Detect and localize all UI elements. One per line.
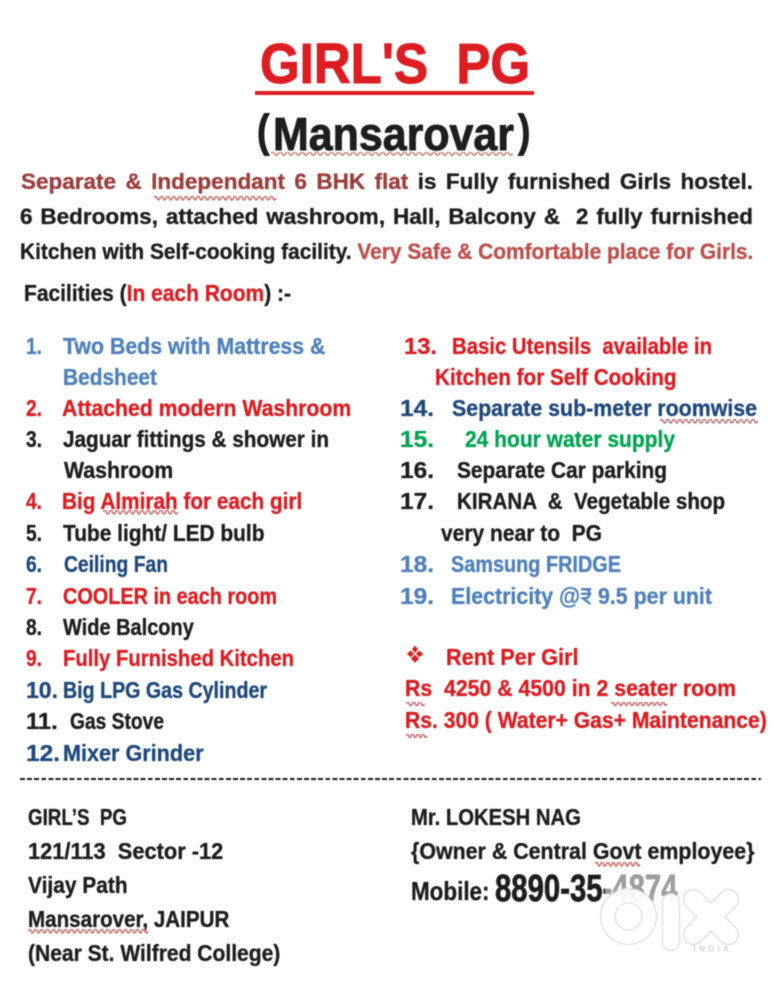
- svg-text:INDIA: INDIA: [694, 945, 733, 954]
